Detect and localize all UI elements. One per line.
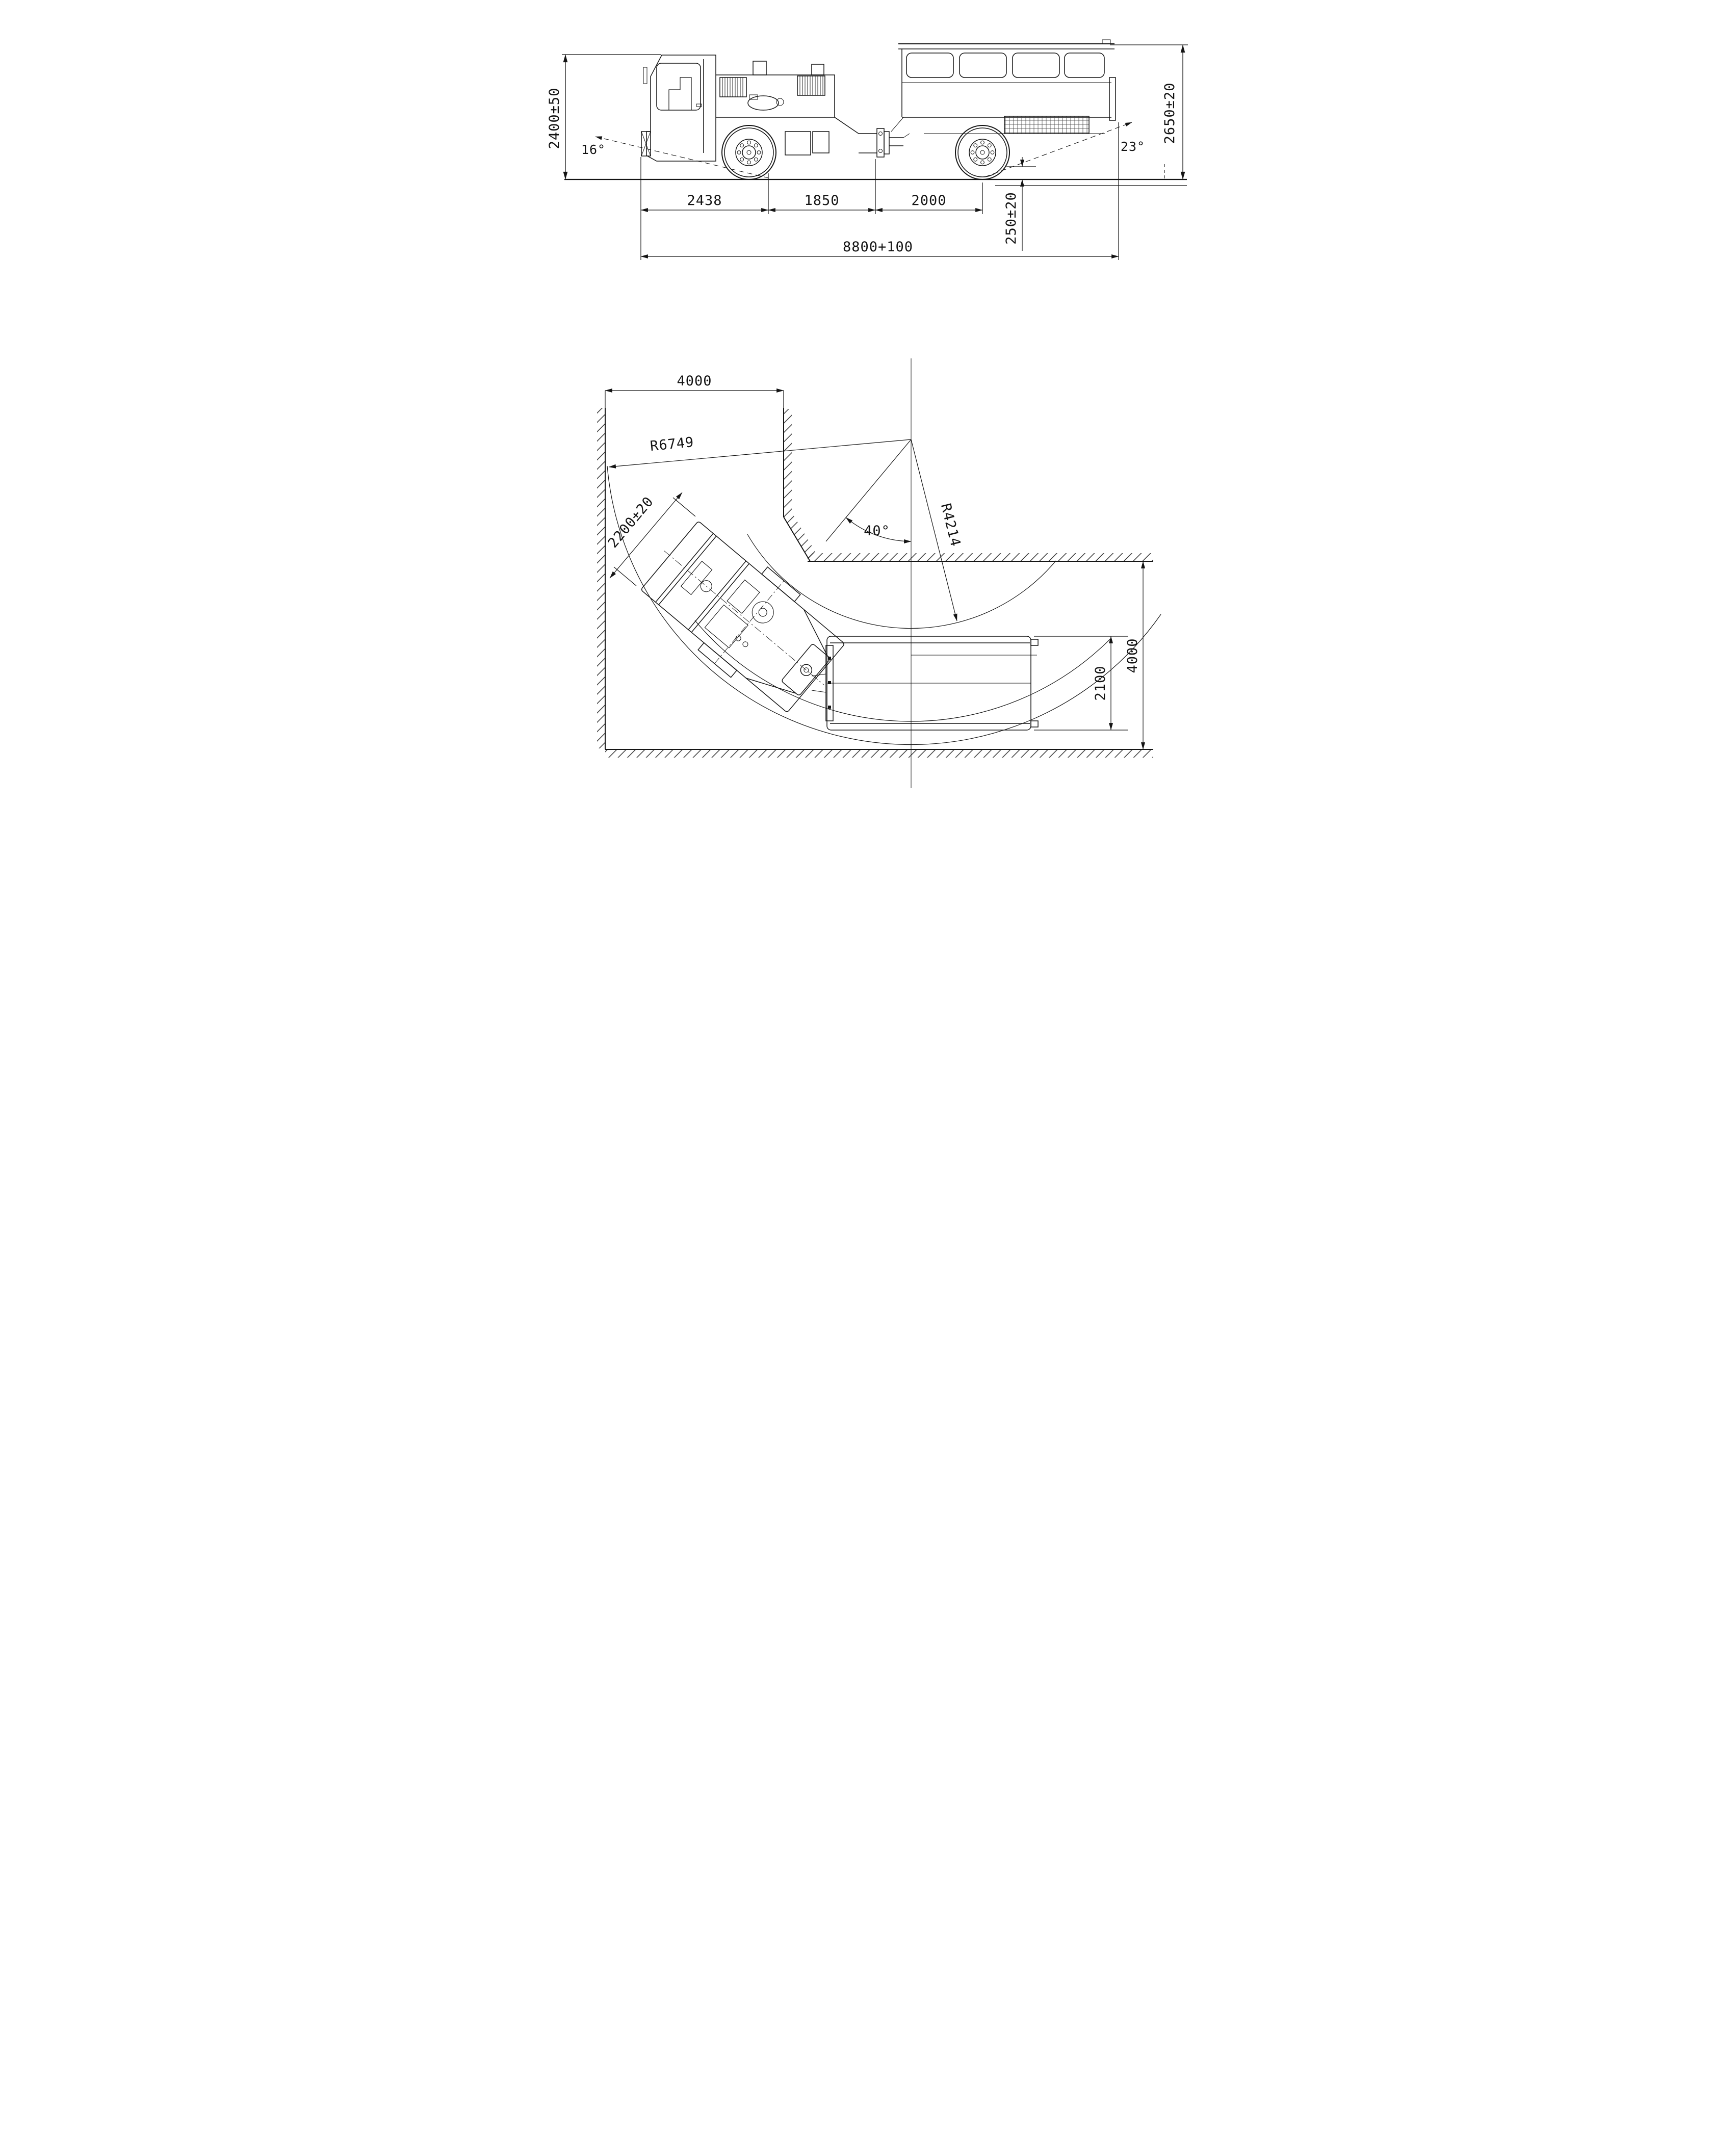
dim-rear-clearance: 250±20 <box>1003 157 1036 251</box>
cooling-fan <box>747 597 778 627</box>
air-intake <box>812 64 824 75</box>
personnel-cabin <box>891 40 1116 138</box>
inner-radius-leader: R4214 <box>911 439 964 621</box>
dim-length-segments: 2438 1850 2000 <box>641 157 982 260</box>
window-2 <box>960 53 1006 77</box>
vehicle-clearance-drawing: 2400±50 2650±20 16° 23° 2438 <box>547 0 1190 789</box>
cab <box>641 55 716 161</box>
front-unit-axis <box>664 551 824 685</box>
vehicle-side-profile <box>641 40 1116 179</box>
cab-window <box>657 63 701 110</box>
carriage-rear-corner-bottom <box>1031 721 1038 727</box>
dim-tunnel-main-label: 4000 <box>1125 638 1141 673</box>
articulation-hitch <box>859 128 903 157</box>
side-view: 2400±50 2650±20 16° 23° 2438 <box>547 40 1188 260</box>
plan-view: 4000 R6749 R4214 40° 2200±20 <box>597 358 1161 788</box>
carriage-rear-corner-top <box>1031 639 1038 645</box>
tool-box <box>813 132 829 153</box>
window-3 <box>1013 53 1059 77</box>
approach-angle-label: 16° <box>581 142 605 157</box>
dim-carriage-width: 2100 <box>1034 636 1128 730</box>
engineering-drawing-page: 2400±50 2650±20 16° 23° 2438 <box>547 0 1190 789</box>
vent-panel <box>1004 116 1089 134</box>
dim-carriage-width-label: 2100 <box>1093 665 1108 700</box>
top-wall-hatch <box>808 553 1153 561</box>
engine-hatch-2 <box>727 580 760 613</box>
dim-seg-rear-label: 2000 <box>911 193 946 209</box>
dim-front-unit-width: 2200±20 <box>605 492 695 586</box>
front-wheel <box>722 125 776 179</box>
rear-bumper <box>1109 77 1116 120</box>
turning-arcs <box>607 466 1161 745</box>
dim-overall-length-label: 8800+100 <box>842 239 913 255</box>
carriage-plan <box>812 636 1038 730</box>
dim-rear-clearance-label: 250±20 <box>1003 192 1019 245</box>
dim-overall-height-label: 2650±20 <box>1162 83 1178 144</box>
left-wall-hatch <box>597 408 605 748</box>
muffler <box>748 96 779 110</box>
dim-cab-height-label: 2400±50 <box>547 88 562 149</box>
mirror <box>643 67 647 84</box>
articulation-angle: 40° <box>826 439 911 541</box>
dim-seg-front-label: 2438 <box>687 193 722 209</box>
dim-overall-length: 8800+100 <box>641 122 1119 260</box>
engine-deck <box>716 61 859 155</box>
departure-angle-label: 23° <box>1120 139 1145 154</box>
outer-radius-leader: R6749 <box>609 434 911 467</box>
driver-seat <box>669 77 691 110</box>
inner-turning-arc <box>747 534 1056 629</box>
dim-tunnel-entry-label: 4000 <box>677 373 712 389</box>
engine-hatch-1 <box>705 605 748 647</box>
carriage-sweep-arc <box>695 620 1110 721</box>
entry-right-wall-hatch <box>784 409 792 518</box>
outer-turning-arc <box>607 466 1161 745</box>
inner-radius-label: R4214 <box>937 502 963 548</box>
dim-tunnel-entry-width: 4000 <box>605 373 784 409</box>
grille-left <box>720 77 746 97</box>
exhaust-stack <box>753 61 766 75</box>
right-wheel-plan <box>761 567 800 602</box>
window-1 <box>906 53 953 77</box>
step-box <box>785 132 811 155</box>
outer-radius-label: R6749 <box>649 434 694 454</box>
dim-seg-mid-label: 1850 <box>804 193 839 209</box>
articulation-angle-label: 40° <box>864 523 890 539</box>
dim-tunnel-main-width: 4000 <box>1125 561 1143 749</box>
window-4 <box>1065 53 1104 77</box>
bottom-wall-hatch <box>605 749 1153 758</box>
grille-right <box>797 76 825 95</box>
dim-overall-height: 2650±20 <box>1110 45 1188 179</box>
